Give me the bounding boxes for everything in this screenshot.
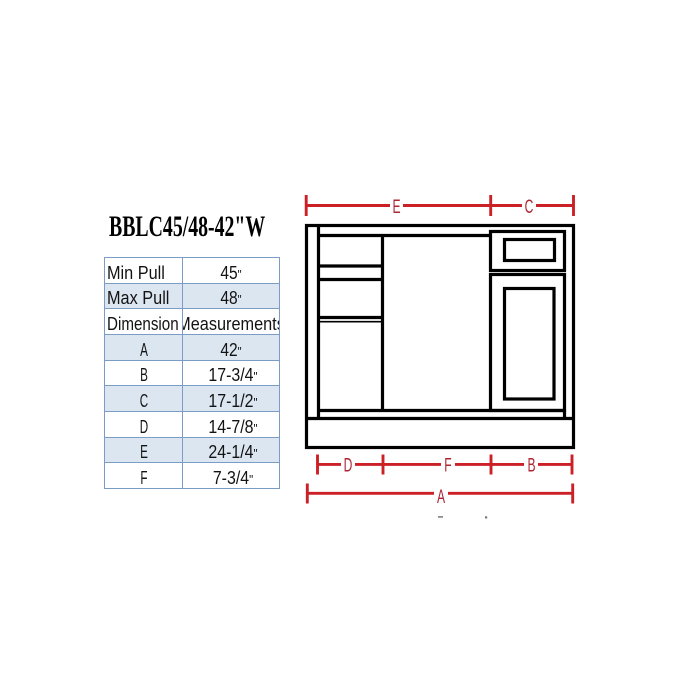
- svg-text:C: C: [525, 196, 534, 218]
- svg-text:B: B: [527, 455, 535, 477]
- svg-text:A: A: [437, 486, 445, 508]
- svg-text:F: F: [444, 455, 451, 477]
- svg-text:E: E: [392, 196, 400, 218]
- svg-text:D: D: [344, 455, 353, 477]
